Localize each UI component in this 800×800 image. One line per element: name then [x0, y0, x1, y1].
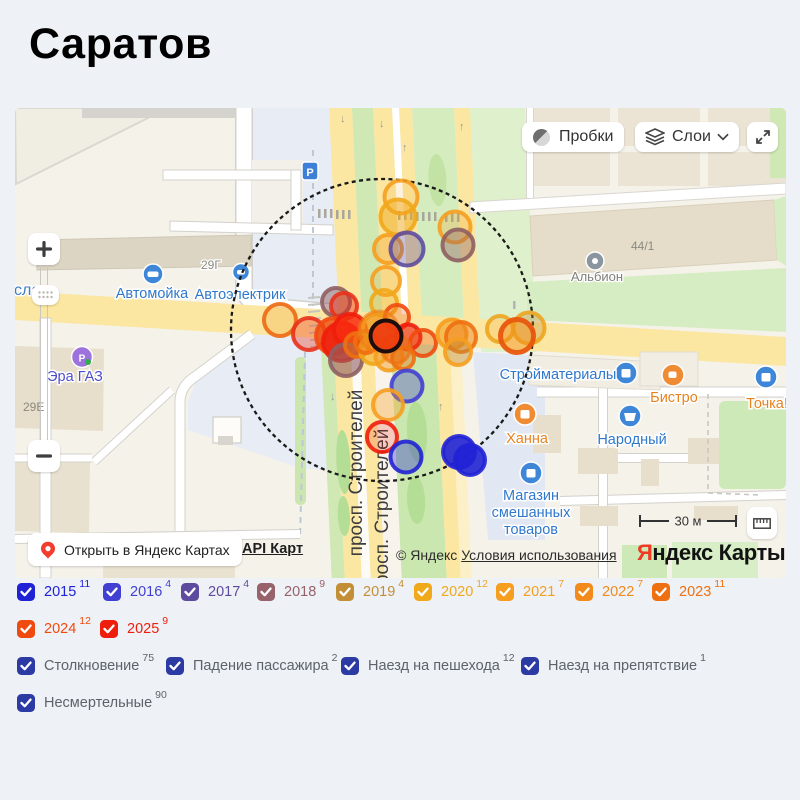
svg-text:Магазин: Магазин	[503, 488, 559, 504]
svg-text:↓: ↓	[330, 391, 336, 403]
svg-text:Эра ГАЗ: Эра ГАЗ	[47, 369, 103, 385]
svg-text:товаров: товаров	[504, 522, 558, 538]
svg-text:↑: ↑	[402, 142, 408, 154]
svg-text:↑: ↑	[459, 121, 465, 133]
svg-text:просп. Строителей: просп. Строителей	[346, 390, 367, 557]
svg-text:Альбион: Альбион	[571, 269, 623, 284]
svg-text:Народный: Народный	[597, 432, 666, 448]
svg-text:↓: ↓	[379, 118, 385, 130]
svg-text:29Г: 29Г	[201, 258, 221, 272]
svg-text:30 м: 30 м	[674, 514, 701, 529]
svg-text:Автоэлектрик: Автоэлектрик	[195, 287, 287, 303]
svg-text:↑: ↑	[438, 401, 444, 413]
svg-text:Бистро: Бистро	[650, 390, 698, 406]
svg-text:↓: ↓	[340, 113, 346, 125]
svg-text:Точка!: Точка!	[746, 396, 786, 412]
svg-text:Р: Р	[79, 354, 86, 365]
svg-text:Автомойка: Автомойка	[116, 286, 189, 302]
svg-text:Ханна: Ханна	[506, 431, 549, 447]
svg-text:Стройматериалы: Стройматериалы	[500, 367, 617, 383]
svg-text:44/1: 44/1	[631, 239, 655, 253]
svg-text:смешанных: смешанных	[492, 505, 571, 521]
svg-text:Р: Р	[306, 167, 313, 179]
